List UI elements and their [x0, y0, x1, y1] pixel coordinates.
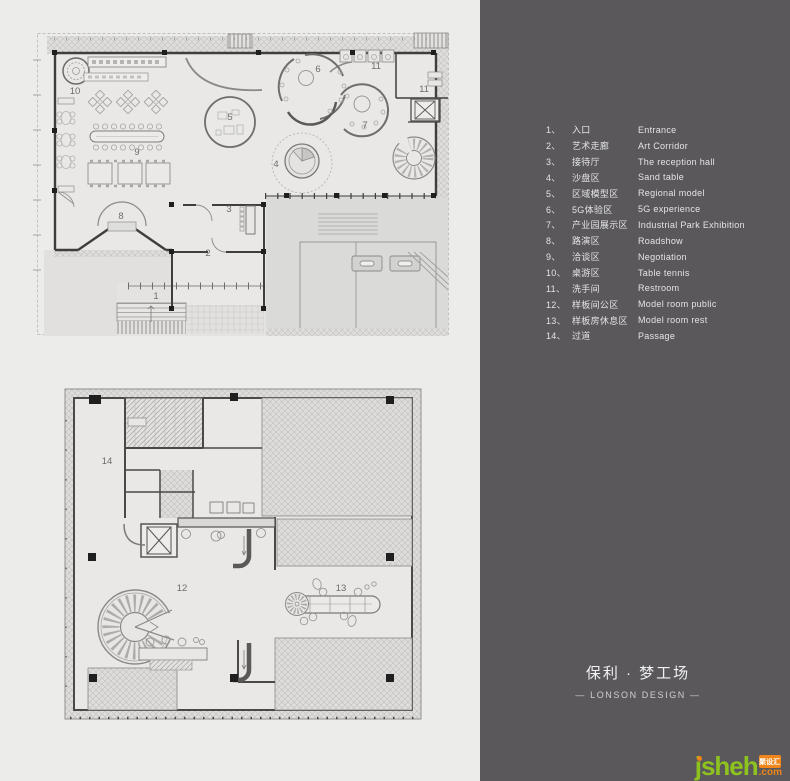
legend-item-number: 9、: [546, 250, 572, 263]
legend-item-number: 12、: [546, 298, 572, 311]
elevator: [411, 99, 439, 121]
legend-item-number: 8、: [546, 234, 572, 247]
legend-item-en: Art Corridor: [638, 141, 782, 151]
watermark-logo: jsheh 聚设汇 .com: [695, 755, 782, 778]
room-number-label: 11: [371, 61, 381, 72]
legend-item: 3、接待厅The reception hall: [546, 154, 782, 170]
dimension-ticks: [33, 60, 41, 270]
legend-item-number: 5、: [546, 187, 572, 200]
room-number-label: 14: [102, 456, 113, 467]
legend-item: 10、桌游区Table tennis: [546, 265, 782, 281]
room-number-label: 6: [315, 64, 320, 75]
legend-item-zh: 洗手间: [572, 282, 638, 295]
legend-item-zh: 沙盘区: [572, 171, 638, 184]
legend-item-en: Model room rest: [638, 315, 782, 325]
legend-item: 6、5G体验区5G experience: [546, 201, 782, 217]
room-number-label: 11: [419, 84, 429, 95]
watermark-suffix: .com: [759, 768, 782, 778]
legend-item-en: The reception hall: [638, 157, 782, 167]
legend-item-zh: 5G体验区: [572, 203, 638, 216]
info-panel: 1、入口Entrance2、艺术走廊Art Corridor3、接待厅The r…: [480, 0, 790, 781]
stair-block: [125, 398, 203, 448]
legend-item: 11、洗手间Restroom: [546, 280, 782, 296]
legend-item-zh: 样板间公区: [572, 298, 638, 311]
legend-item-zh: 产业园展示区: [572, 218, 638, 231]
watermark-text: jsheh: [695, 755, 758, 778]
legend-item-zh: 艺术走廊: [572, 139, 638, 152]
poster-page: { "page": { "background": "#ececea" }, "…: [0, 0, 790, 781]
legend-item-en: Sand table: [638, 172, 782, 182]
legend-item: 5、区域模型区Regional model: [546, 185, 782, 201]
room-number-label: 10: [70, 86, 81, 97]
legend-item-zh: 过道: [572, 329, 638, 342]
legend-item-number: 3、: [546, 155, 572, 168]
legend-item-number: 10、: [546, 266, 572, 279]
room-number-label: 13: [336, 583, 347, 594]
legend-item-zh: 洽谈区: [572, 250, 638, 263]
legend-item-number: 1、: [546, 123, 572, 136]
legend-item-en: Entrance: [638, 125, 782, 135]
legend-item-number: 7、: [546, 218, 572, 231]
room-number-label: 2: [205, 248, 210, 259]
legend-item-en: Table tennis: [638, 268, 782, 278]
legend-item: 1、入口Entrance: [546, 122, 782, 138]
legend-item-number: 13、: [546, 314, 572, 327]
legend-item: 8、路演区Roadshow: [546, 233, 782, 249]
project-title: 保利 · 梦工场: [486, 662, 790, 683]
legend-item-en: Restroom: [638, 283, 782, 293]
counter: [178, 518, 275, 527]
room-number-label: 7: [362, 120, 367, 131]
legend-item: 4、沙盘区Sand table: [546, 170, 782, 186]
room-number-label: 4: [273, 159, 278, 170]
legend-item: 14、过道Passage: [546, 328, 782, 344]
legend-item-number: 2、: [546, 139, 572, 152]
legend-item-number: 11、: [546, 282, 572, 295]
design-studio-name: — LONSON DESIGN —: [486, 690, 790, 700]
legend-item-zh: 区域模型区: [572, 187, 638, 200]
watermark-dot: [697, 756, 702, 761]
room-legend: 1、入口Entrance2、艺术走廊Art Corridor3、接待厅The r…: [546, 122, 782, 344]
legend-item-en: 5G experience: [638, 204, 782, 214]
legend-item: 9、洽谈区Negotiation: [546, 249, 782, 265]
legend-item-zh: 入口: [572, 123, 638, 136]
legend-item: 13、样板房休息区Model room rest: [546, 312, 782, 328]
legend-item-zh: 路演区: [572, 234, 638, 247]
stair-hatch: [228, 34, 252, 48]
legend-item: 12、样板间公区Model room public: [546, 296, 782, 312]
room-number-label: 8: [118, 211, 123, 222]
legend-item-en: Negotiation: [638, 252, 782, 262]
legend-item-number: 6、: [546, 203, 572, 216]
legend-item-en: Model room public: [638, 299, 782, 309]
room-number-label: 5: [227, 112, 232, 123]
legend-item-zh: 桌游区: [572, 266, 638, 279]
legend-item-en: Industrial Park Exhibition: [638, 220, 782, 230]
stair-hatch: [414, 33, 448, 48]
legend-item: 7、产业园展示区Industrial Park Exhibition: [546, 217, 782, 233]
legend-item-en: Regional model: [638, 188, 782, 198]
room-number-label: 12: [177, 583, 188, 594]
room-number-label: 3: [226, 204, 231, 215]
legend-item-en: Passage: [638, 331, 782, 341]
legend-item-en: Roadshow: [638, 236, 782, 246]
legend-item: 2、艺术走廊Art Corridor: [546, 138, 782, 154]
room-number-label: 1: [153, 291, 158, 302]
legend-item-zh: 接待厅: [572, 155, 638, 168]
room-number-label: 9: [134, 147, 139, 158]
project-title-block: 保利 · 梦工场 — LONSON DESIGN —: [480, 662, 790, 700]
legend-item-number: 4、: [546, 171, 572, 184]
floor-plan-1: 123456789101111: [28, 24, 464, 342]
legend-item-number: 14、: [546, 329, 572, 342]
floor-plan-2: 121314: [58, 383, 430, 727]
legend-item-zh: 样板房休息区: [572, 314, 638, 327]
